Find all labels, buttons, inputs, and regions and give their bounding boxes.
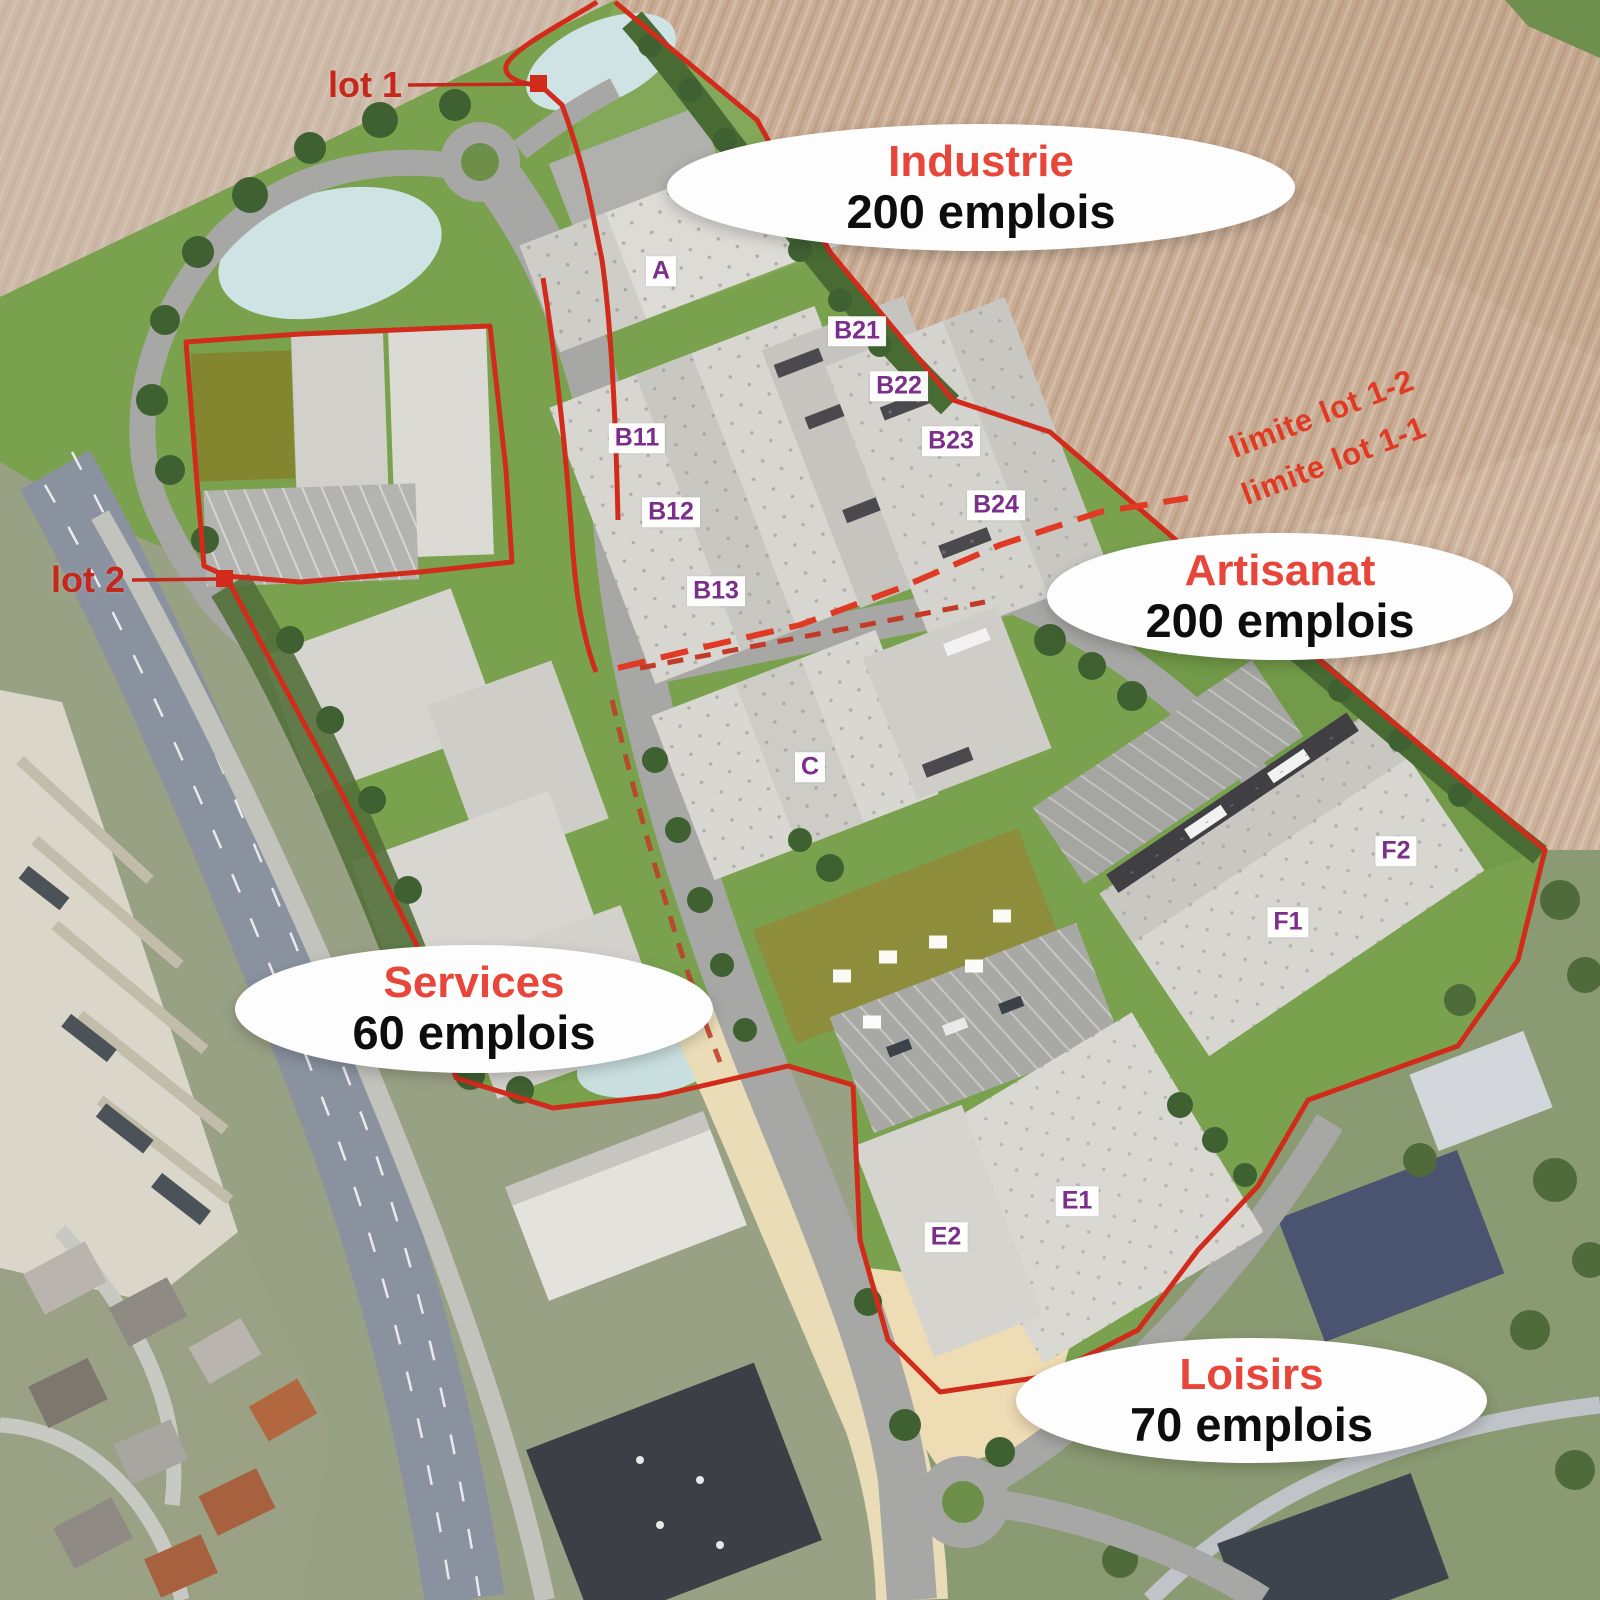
building-label-b11: B11 [609, 423, 665, 453]
garden-marker [879, 951, 897, 964]
building-label-a: A [646, 256, 676, 286]
building-label-b13: B13 [687, 576, 745, 606]
building-label-b12: B12 [642, 497, 700, 527]
callout-industrie-title: Industrie [888, 137, 1074, 186]
lot-2-label: lot 2 [51, 559, 125, 601]
building-label-b21: B21 [828, 316, 886, 346]
building-label-f1: F1 [1267, 907, 1308, 937]
callout-artisanat-title: Artisanat [1185, 546, 1376, 595]
building-label-e2: E2 [925, 1222, 968, 1252]
callout-loisirs-value: 70 emplois [1130, 1399, 1373, 1452]
callout-services: Services 60 emplois [235, 945, 713, 1073]
garden-marker [929, 936, 947, 949]
building-label-b22: B22 [870, 371, 928, 401]
callout-industrie-value: 200 emplois [846, 186, 1115, 239]
garden-marker [863, 1016, 881, 1029]
callout-services-value: 60 emplois [353, 1007, 596, 1060]
building-label-c: C [795, 752, 825, 782]
building-label-b24: B24 [967, 490, 1025, 520]
building-label-f2: F2 [1375, 836, 1416, 866]
callout-services-title: Services [383, 958, 564, 1007]
garden-marker [993, 910, 1011, 923]
building-label-e1: E1 [1056, 1186, 1099, 1216]
aerial-masterplan-map: A B11 B12 B13 B21 B22 B23 B24 C E1 E2 F1… [0, 0, 1600, 1600]
lot-1-label: lot 1 [328, 64, 402, 106]
garden-marker [965, 960, 983, 973]
callout-artisanat-value: 200 emplois [1145, 595, 1414, 648]
callout-artisanat: Artisanat 200 emplois [1047, 533, 1513, 660]
callout-loisirs-title: Loisirs [1179, 1350, 1323, 1399]
callout-industrie: Industrie 200 emplois [667, 124, 1295, 251]
callout-loisirs: Loisirs 70 emplois [1016, 1338, 1487, 1463]
building-label-b23: B23 [922, 426, 980, 456]
garden-marker [833, 970, 851, 983]
